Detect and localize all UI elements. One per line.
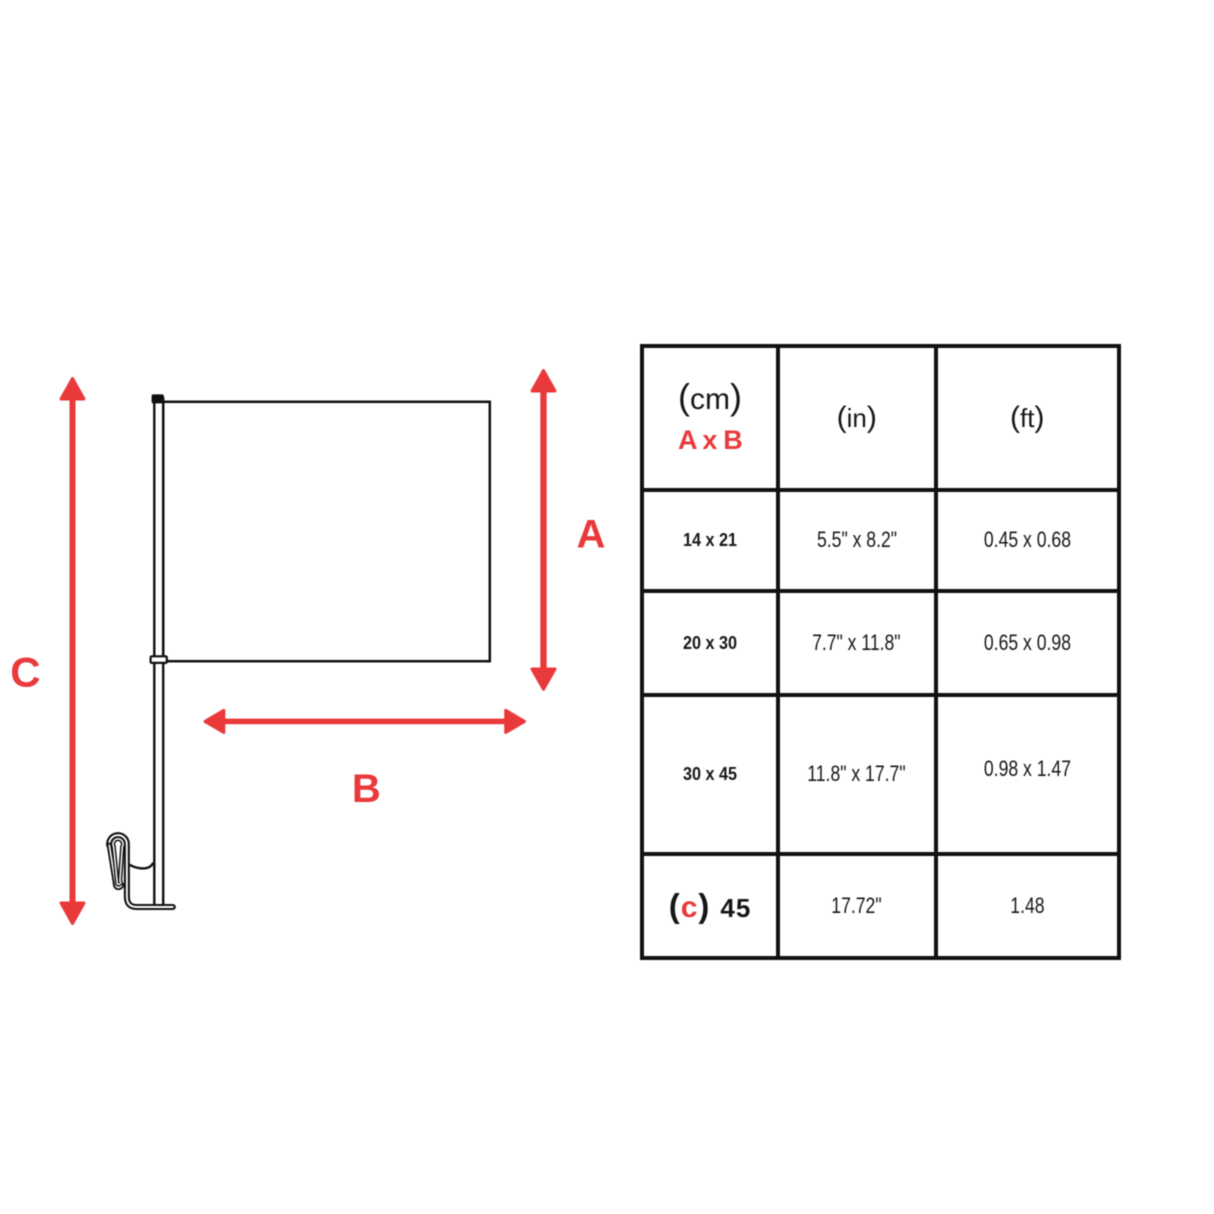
svg-text:B: B xyxy=(352,767,381,811)
svg-text:C: C xyxy=(10,649,40,696)
svg-text:A: A xyxy=(577,513,606,557)
